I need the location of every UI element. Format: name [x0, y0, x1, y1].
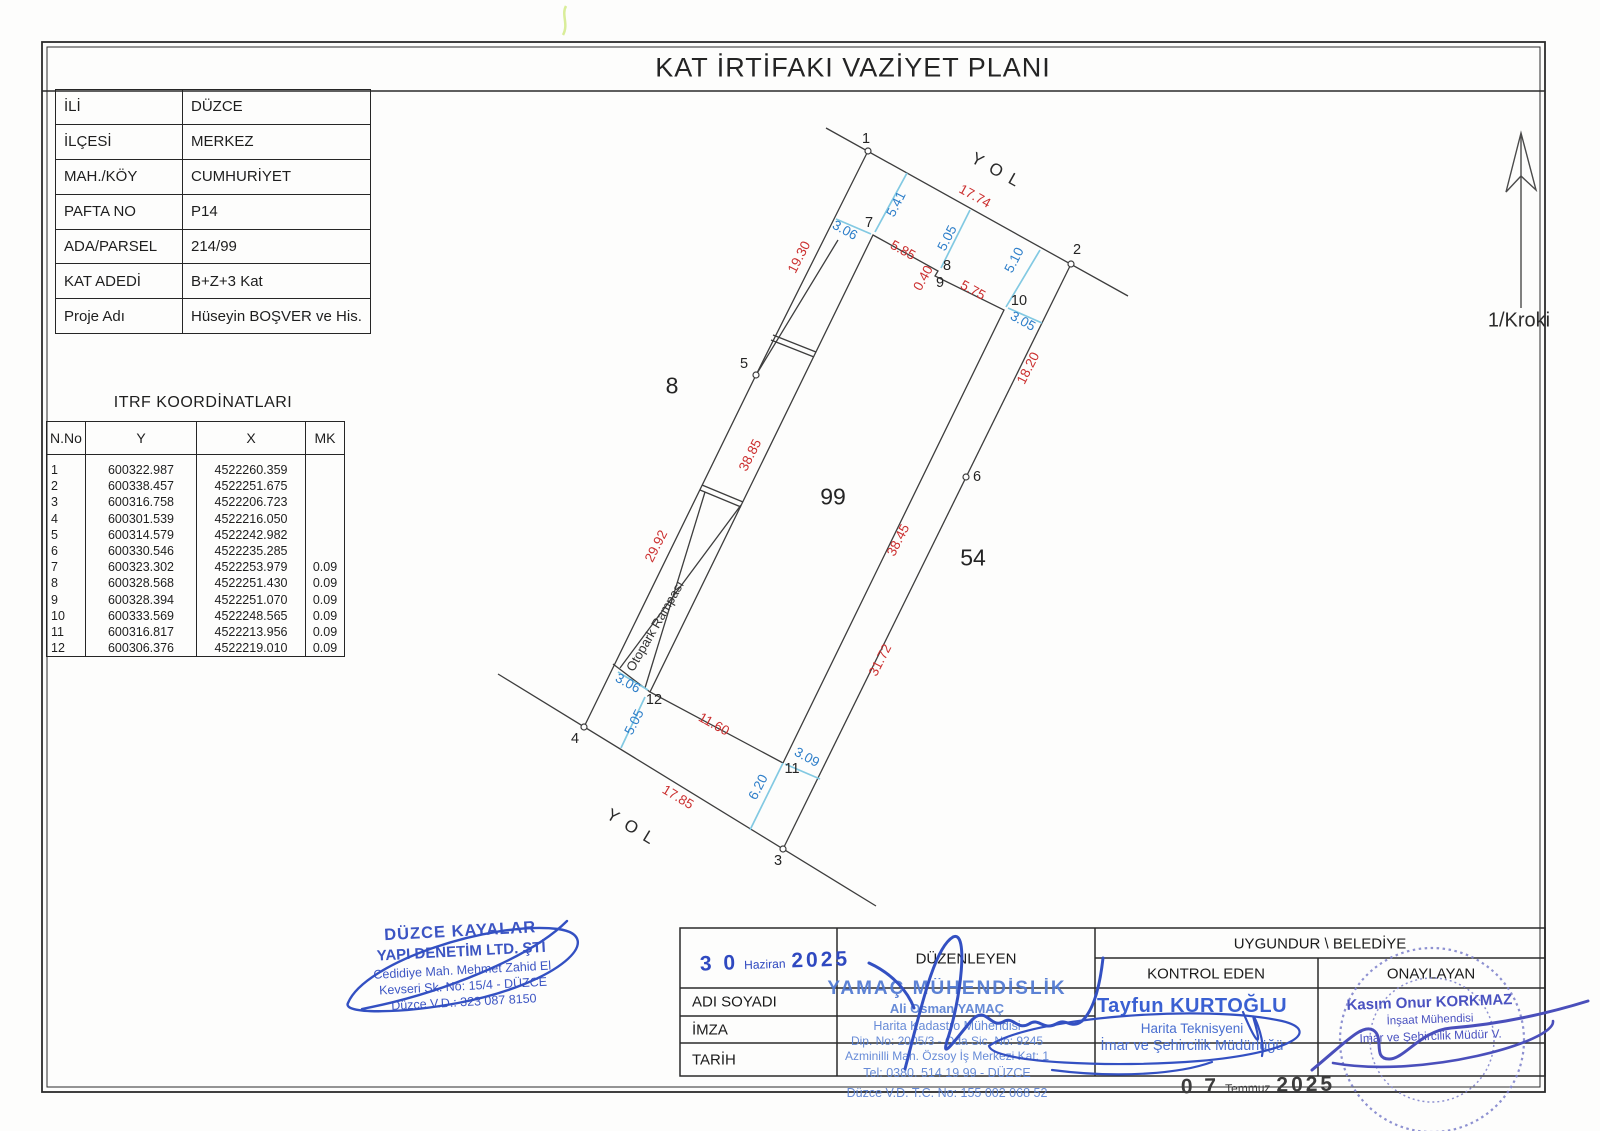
itrf-y-value: 600323.302 — [86, 559, 197, 575]
itrf-row: 5600314.5794522242.982 — [47, 527, 345, 543]
itrf-x-value: 4522213.956 — [197, 624, 306, 640]
itrf-row: 11600316.8174522213.9560.09 — [47, 624, 345, 640]
dim-red: 31.72 — [866, 642, 895, 679]
itrf-mk-value — [306, 455, 345, 479]
point-number: 1 — [862, 131, 870, 147]
kayalar-signature — [348, 928, 578, 1011]
info-label: MAH./KÖY — [56, 159, 183, 194]
dim-red: 17.74 — [957, 181, 994, 211]
itrf-point-no: 1 — [47, 455, 86, 479]
dim-red: 18.20 — [1014, 350, 1043, 387]
kurtoglu-signature-loop — [989, 1013, 1300, 1064]
info-table: İLİDÜZCEİLÇESİMERKEZMAH./KÖYCUMHURİYETPA… — [55, 89, 371, 334]
point-number: 11 — [784, 761, 799, 777]
itrf-mk-value: 0.09 — [306, 624, 345, 640]
info-row: İLÇESİMERKEZ — [56, 124, 371, 159]
itrf-mk-value: 0.09 — [306, 608, 345, 624]
dim-blue: 3.06 — [830, 217, 860, 243]
scan-artifact — [563, 6, 566, 35]
dim-red: 5.75 — [958, 277, 988, 303]
itrf-row: 7600323.3024522253.9790.09 — [47, 559, 345, 575]
info-row: MAH./KÖYCUMHURİYET — [56, 159, 371, 194]
parcel-boundary-left — [584, 151, 868, 727]
itrf-y-value: 600328.568 — [86, 575, 197, 591]
itrf-point-no: 12 — [47, 640, 86, 657]
itrf-x-value: 4522251.675 — [197, 478, 306, 494]
parcel-number: 54 — [960, 545, 986, 572]
info-row: Proje AdıHüseyin BOŞVER ve His. — [56, 299, 371, 334]
korkmaz-approver-stamp: Kasım Onur KORKMAZ İnşaat Mühendisi İmar… — [1346, 991, 1513, 1046]
point-number: 6 — [973, 469, 981, 485]
itrf-mk-value — [306, 527, 345, 543]
itrf-point-no: 6 — [47, 543, 86, 559]
dim-blue: 5.10 — [1001, 245, 1026, 275]
itrf-mk-value — [306, 494, 345, 510]
itrf-row: 2600338.4574522251.675 — [47, 478, 345, 494]
dim-red: 29.92 — [642, 528, 671, 565]
dim-red: 38.85 — [736, 437, 765, 474]
itrf-x-value: 4522242.982 — [197, 527, 306, 543]
ramp-wall-lower2 — [700, 490, 741, 507]
road-label: YOL — [603, 805, 666, 854]
itrf-x-value: 4522251.430 — [197, 575, 306, 591]
ramp-wall-upper2 — [771, 340, 814, 357]
parcel-number: 8 — [666, 373, 679, 400]
ramp-label: Otopark Rampası — [623, 578, 687, 674]
itrf-y-value: 600333.569 — [86, 608, 197, 624]
itrf-header-row: N.No Y X MK — [47, 422, 345, 455]
itrf-table-title: ITRF KOORDİNATLARI — [114, 394, 293, 412]
kayalar-company-stamp: DÜZCE KAYALAR YAPI DENETİM LTD. ŞTİ Cedi… — [371, 917, 553, 1016]
point-number: 4 — [571, 731, 579, 747]
info-label: İLÇESİ — [56, 124, 183, 159]
dim-red: 38.45 — [884, 522, 913, 559]
itrf-y-value: 600316.817 — [86, 624, 197, 640]
itrf-x-value: 4522251.070 — [197, 592, 306, 608]
itrf-mk-value: 0.09 — [306, 640, 345, 657]
cell-duzenleyen: DÜZENLEYEN — [916, 951, 1017, 968]
itrf-mk-value: 0.09 — [306, 575, 345, 591]
itrf-header-y: Y — [86, 422, 197, 455]
dim-red: 19.30 — [785, 239, 814, 276]
info-label: İLİ — [56, 90, 183, 125]
yamac-engineering-stamp: YAMAÇ MÜHENDİSLİK Ali Osman YAMAÇ Harita… — [827, 977, 1066, 1101]
itrf-header-x: X — [197, 422, 306, 455]
point-number: 3 — [774, 853, 782, 869]
point-number: 8 — [943, 258, 951, 274]
itrf-y-value: 600306.376 — [86, 640, 197, 657]
itrf-row: 12600306.3764522219.0100.09 — [47, 640, 345, 657]
itrf-point-no: 5 — [47, 527, 86, 543]
point-number: 2 — [1073, 242, 1081, 258]
info-label: Proje Adı — [56, 299, 183, 334]
itrf-y-value: 600330.546 — [86, 543, 197, 559]
itrf-point-no: 3 — [47, 494, 86, 510]
info-label: PAFTA NO — [56, 194, 183, 229]
itrf-header-mk: MK — [306, 422, 345, 455]
row-tarih: TARİH — [692, 1052, 736, 1069]
info-value: P14 — [183, 194, 371, 229]
point-number: 10 — [1011, 293, 1027, 309]
itrf-x-value: 4522253.979 — [197, 559, 306, 575]
scanned-site-plan-sheet: KAT İRTİFAKI VAZİYET PLANI İLİDÜZCEİLÇES… — [0, 0, 1600, 1131]
dim-blue: 5.05 — [621, 707, 646, 737]
itrf-row: 3600316.7584522206.723 — [47, 494, 345, 510]
dim-blue: 3.05 — [1008, 308, 1038, 334]
info-row: ADA/PARSEL214/99 — [56, 229, 371, 264]
itrf-point-no: 4 — [47, 511, 86, 527]
itrf-mk-value — [306, 543, 345, 559]
info-value: MERKEZ — [183, 124, 371, 159]
itrf-point-no: 11 — [47, 624, 86, 640]
itrf-row: 8600328.5684522251.4300.09 — [47, 575, 345, 591]
info-label: ADA/PARSEL — [56, 229, 183, 264]
point-number: 12 — [646, 692, 662, 708]
itrf-point-no: 10 — [47, 608, 86, 624]
itrf-row: 6600330.5464522235.285 — [47, 543, 345, 559]
parcel-number: 99 — [820, 484, 846, 511]
ramp-wall-upper — [773, 335, 816, 352]
itrf-x-value: 4522219.010 — [197, 640, 306, 657]
itrf-x-value: 4522260.359 — [197, 455, 306, 479]
itrf-point-no: 7 — [47, 559, 86, 575]
ramp-wall-lower — [702, 485, 743, 502]
itrf-point-no: 2 — [47, 478, 86, 494]
kayalar-signature-slash — [362, 921, 567, 1009]
itrf-x-value: 4522235.285 — [197, 543, 306, 559]
itrf-row: 1600322.9874522260.359 — [47, 455, 345, 479]
itrf-x-value: 4522248.565 — [197, 608, 306, 624]
dim-red: 5.85 — [888, 237, 918, 263]
itrf-row: 4600301.5394522216.050 — [47, 511, 345, 527]
itrf-y-value: 600322.987 — [86, 455, 197, 479]
itrf-header-nno: N.No — [47, 422, 86, 455]
korkmaz-signature-sweep — [1333, 1021, 1553, 1067]
itrf-y-value: 600338.457 — [86, 478, 197, 494]
itrf-y-value: 600328.394 — [86, 592, 197, 608]
info-value: CUMHURİYET — [183, 159, 371, 194]
korkmaz-signature — [1312, 1001, 1588, 1070]
itrf-x-value: 4522216.050 — [197, 511, 306, 527]
row-imza: İMZA — [692, 1022, 728, 1039]
itrf-point-no: 8 — [47, 575, 86, 591]
north-arrow-icon — [1506, 133, 1536, 308]
info-value: 214/99 — [183, 229, 371, 264]
north-arrow-label: 1/Kroki — [1488, 310, 1550, 333]
info-value: DÜZCE — [183, 90, 371, 125]
kurtoglu-signature-scribble — [1052, 1012, 1263, 1074]
info-value: B+Z+3 Kat — [183, 264, 371, 299]
info-row: İLİDÜZCE — [56, 90, 371, 125]
dim-blue: 5.05 — [934, 223, 959, 253]
dim-red: 11.60 — [696, 709, 732, 738]
itrf-mk-value: 0.09 — [306, 559, 345, 575]
dim-red: 17.85 — [660, 782, 697, 812]
itrf-y-value: 600316.758 — [86, 494, 197, 510]
itrf-table: N.No Y X MK 1600322.9874522260.359260033… — [46, 421, 345, 657]
itrf-x-value: 4522206.723 — [197, 494, 306, 510]
point-number: 7 — [865, 215, 873, 231]
cell-kontrol-eden: KONTROL EDEN — [1147, 966, 1265, 983]
itrf-mk-value — [306, 511, 345, 527]
cell-uygundur: UYGUNDUR \ BELEDİYE — [1234, 936, 1407, 953]
info-row: PAFTA NOP14 — [56, 194, 371, 229]
dim-blue: 3.06 — [613, 670, 643, 696]
info-row: KAT ADEDİB+Z+3 Kat — [56, 264, 371, 299]
itrf-mk-value: 0.09 — [306, 592, 345, 608]
itrf-mk-value — [306, 478, 345, 494]
page-title: KAT İRTİFAKI VAZİYET PLANI — [655, 53, 1051, 84]
itrf-y-value: 600314.579 — [86, 527, 197, 543]
dim-red: 0.40 — [910, 263, 936, 293]
itrf-y-value: 600301.539 — [86, 511, 197, 527]
date-stamp-temmuz: 0 7 Temmuz 2025 — [1181, 1073, 1336, 1100]
itrf-row: 10600333.5694522248.5650.09 — [47, 608, 345, 624]
point-number: 5 — [740, 356, 748, 372]
itrf-point-no: 9 — [47, 592, 86, 608]
date-stamp-haziran: 3 0 Haziran 2025 — [699, 947, 850, 976]
row-adi-soyadi: ADI SOYADI — [692, 994, 777, 1011]
info-label: KAT ADEDİ — [56, 264, 183, 299]
dim-blue: 6.20 — [745, 772, 770, 802]
point-number: 9 — [936, 275, 944, 291]
itrf-row: 9600328.3944522251.0700.09 — [47, 592, 345, 608]
cell-onaylayan: ONAYLAYAN — [1387, 966, 1475, 983]
dim-blue: 5.41 — [883, 189, 908, 219]
info-value: Hüseyin BOŞVER ve His. — [183, 299, 371, 334]
kurtoglu-controller-stamp: Tayfun KURTOĞLU Harita Teknisyeni İmar v… — [1097, 995, 1287, 1054]
road-line-bottom — [498, 674, 876, 906]
